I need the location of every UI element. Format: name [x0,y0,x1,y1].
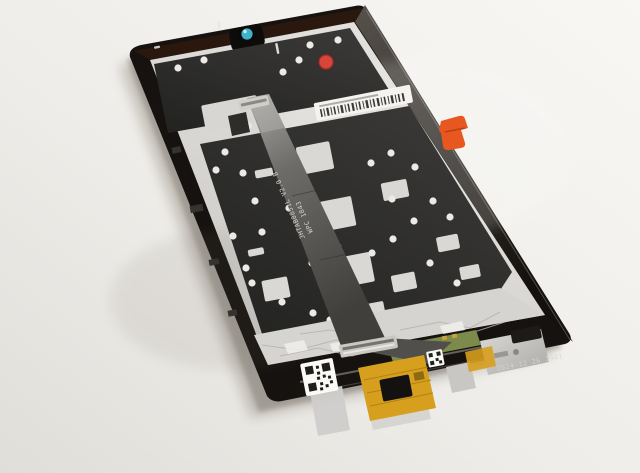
adhesive-tab [228,112,250,136]
qr-code-sticker [300,358,339,397]
camera-lens [241,28,252,39]
mini-qr-sticker [426,349,445,368]
lens-glint [243,30,246,33]
photo-canvas: JHTAB0851L V2.0 B WPC 1843 [0,0,640,473]
photo-scene: JHTAB0851L V2.0 B WPC 1843 [0,0,640,473]
